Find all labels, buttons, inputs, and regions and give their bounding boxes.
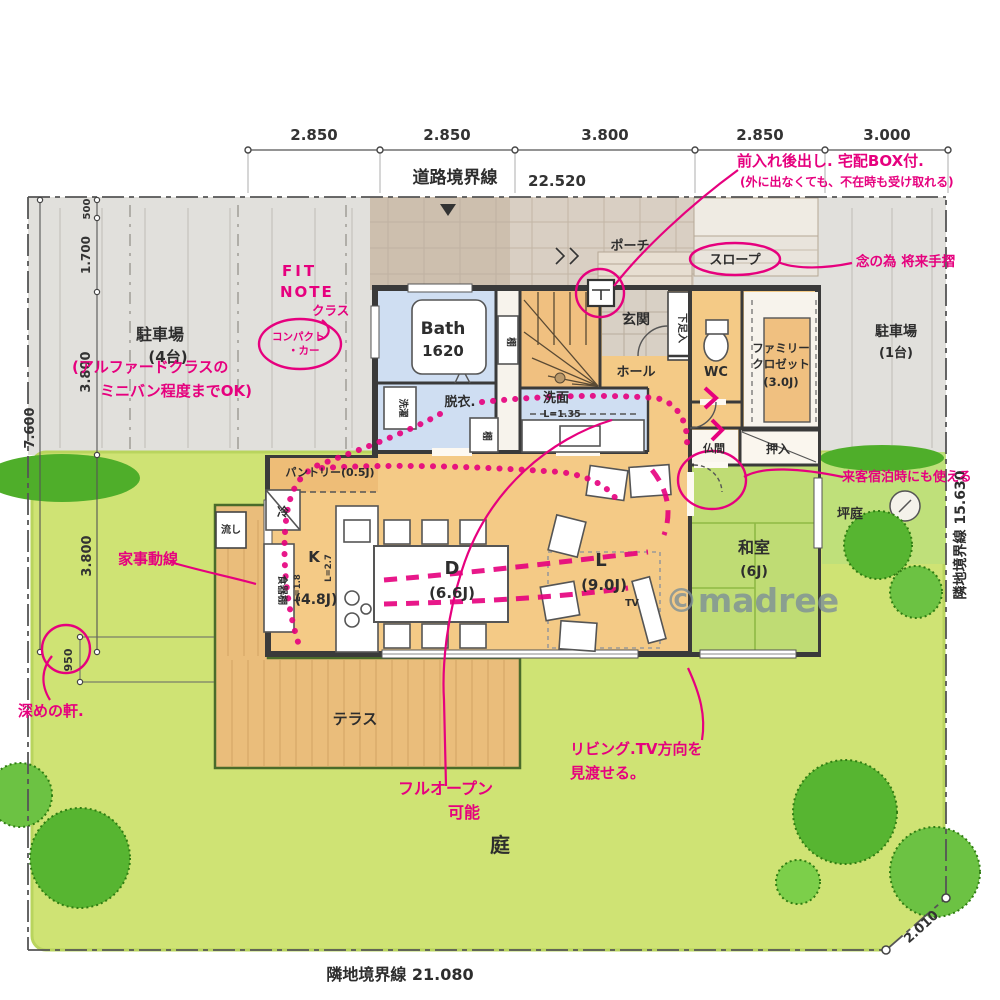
tv-label: TV [625,598,639,609]
watermark: ©madree [665,581,839,620]
note-fit: FIT [282,262,317,280]
dim-top-2: 2.850 [423,126,470,144]
right-boundary-label: 隣地境界線 15.630 [952,470,969,599]
road-length: 22.520 [528,172,586,190]
senmen-length: L=1.35 [543,409,580,420]
bath-size: 1620 [422,342,464,360]
chair [422,520,448,544]
parking-right-count: (1台) [879,345,913,361]
tree [890,566,942,618]
dim-1700: 1.700 [79,236,93,274]
shoe-cabinet-label: 下足入 [676,313,688,343]
closet-label-2: クロゼット [752,357,810,371]
washitsu-size: (6J) [740,564,768,580]
dim-top-5: 3.000 [863,126,910,144]
dim-top-4: 2.850 [736,126,783,144]
chair [460,624,486,648]
senmen-label: 洗面 [543,390,569,406]
pantry-label: パントリー(0.5J) [285,466,374,479]
sofa-cushion [586,466,628,501]
chair [384,520,410,544]
parking-right-label: 駐車場 [875,323,917,340]
kitchen-label: K [308,548,321,566]
dining-size: (6.6J) [429,584,475,602]
living-size: (9.0J) [581,576,627,594]
tsuboniwa-label: 坪庭 [837,506,864,522]
tree [30,808,130,908]
parking-left-label: 駐車場 [136,325,184,344]
datsui-label: 脱衣. [445,394,476,410]
shelf-label-2: 棚 [481,431,493,441]
shelf-column [496,291,520,452]
ramp-upper [694,198,818,236]
washitsu-label: 和室 [738,538,770,557]
note-view-1: リビング.TV方向を [570,740,703,758]
chair [422,624,448,648]
dim-top-1: 2.850 [290,126,337,144]
note-deep-eave: 深めの軒. [18,702,84,720]
stair-newel [555,373,565,383]
note-delivery-1: 前入れ後出し. 宅配BOX付. [737,152,924,170]
cupboard-label: 食器棚 [276,574,289,605]
chair [384,624,410,648]
note-guest: 来客宿泊時にも使える [841,469,972,485]
note-compact-2: ・カー [288,345,320,357]
terrace-label: テラス [333,710,378,728]
toilet [704,331,728,361]
kitchen-len-1: L=1.8 [293,574,303,602]
shelf-label-1: 棚 [505,337,517,347]
note-fullopen-1: フルオープン [398,779,493,798]
tsuboniwa-hedge [820,445,944,471]
tree [793,760,897,864]
bottom-boundary-label: 隣地境界線 21.080 [326,965,473,984]
note-minivan-1: (アルファードクラスの [72,358,228,376]
kitchen-counter [336,506,378,652]
note-class: クラス [312,303,349,318]
tree [890,827,980,917]
washer-label: 洗濯 [397,398,409,418]
floor-plan-canvas: 2.850 2.850 3.800 2.850 3.000 道路境界線 22.5… [0,0,1000,1000]
armchair [540,581,579,620]
dim-top-3: 3.800 [581,126,628,144]
porch-label: ポーチ [610,238,649,254]
butsuma-label: 仏間 [703,442,725,455]
genkan-label: 玄関 [622,311,650,328]
bath-label: Bath [421,319,466,339]
dim-eave-950: 950 [62,648,75,671]
wc-label: WC [704,365,728,380]
dim-500: 500 [82,199,93,220]
note-compact-1: コンパクト [272,331,325,343]
approach-tiles-dark [370,197,510,290]
fridge-label: 冷 [277,504,289,519]
dim-7600: 7.600 [23,407,38,448]
outdoor-sink-label: 流し [221,523,241,536]
garden-label: 庭 [490,833,510,857]
oshiire-label: 押入 [766,441,790,456]
hall-label: ホール [616,365,655,380]
note-housework: 家事動線 [118,550,178,568]
living-label: L [595,550,606,571]
floor-plan-page: 2.850 2.850 3.800 2.850 3.000 道路境界線 22.5… [0,0,1000,1000]
armchair [559,621,597,651]
note-view-2: 見渡せる。 [569,764,645,782]
dining-label: D [445,558,460,579]
note-note: NOTE [280,283,334,301]
closet-size: (3.0J) [763,375,798,389]
kitchen-len-2: L=2.7 [324,554,334,582]
note-delivery-2: (外に出なくても、不在時も受け取れる) [740,174,954,189]
road-boundary-label: 道路境界線 [413,167,498,188]
closet-label-1: ファミリー [752,341,810,355]
tree [776,860,820,904]
toilet-tank [706,320,728,334]
note-handrail: 念の為 将来手摺 [855,253,955,270]
vanity-counter [522,420,644,452]
slope-label: スロープ [709,253,761,268]
note-fullopen-2: 可能 [448,803,480,822]
note-minivan-2: ミニバン程度までOK) [100,382,252,400]
dim-3800-lower: 3.800 [80,535,95,576]
